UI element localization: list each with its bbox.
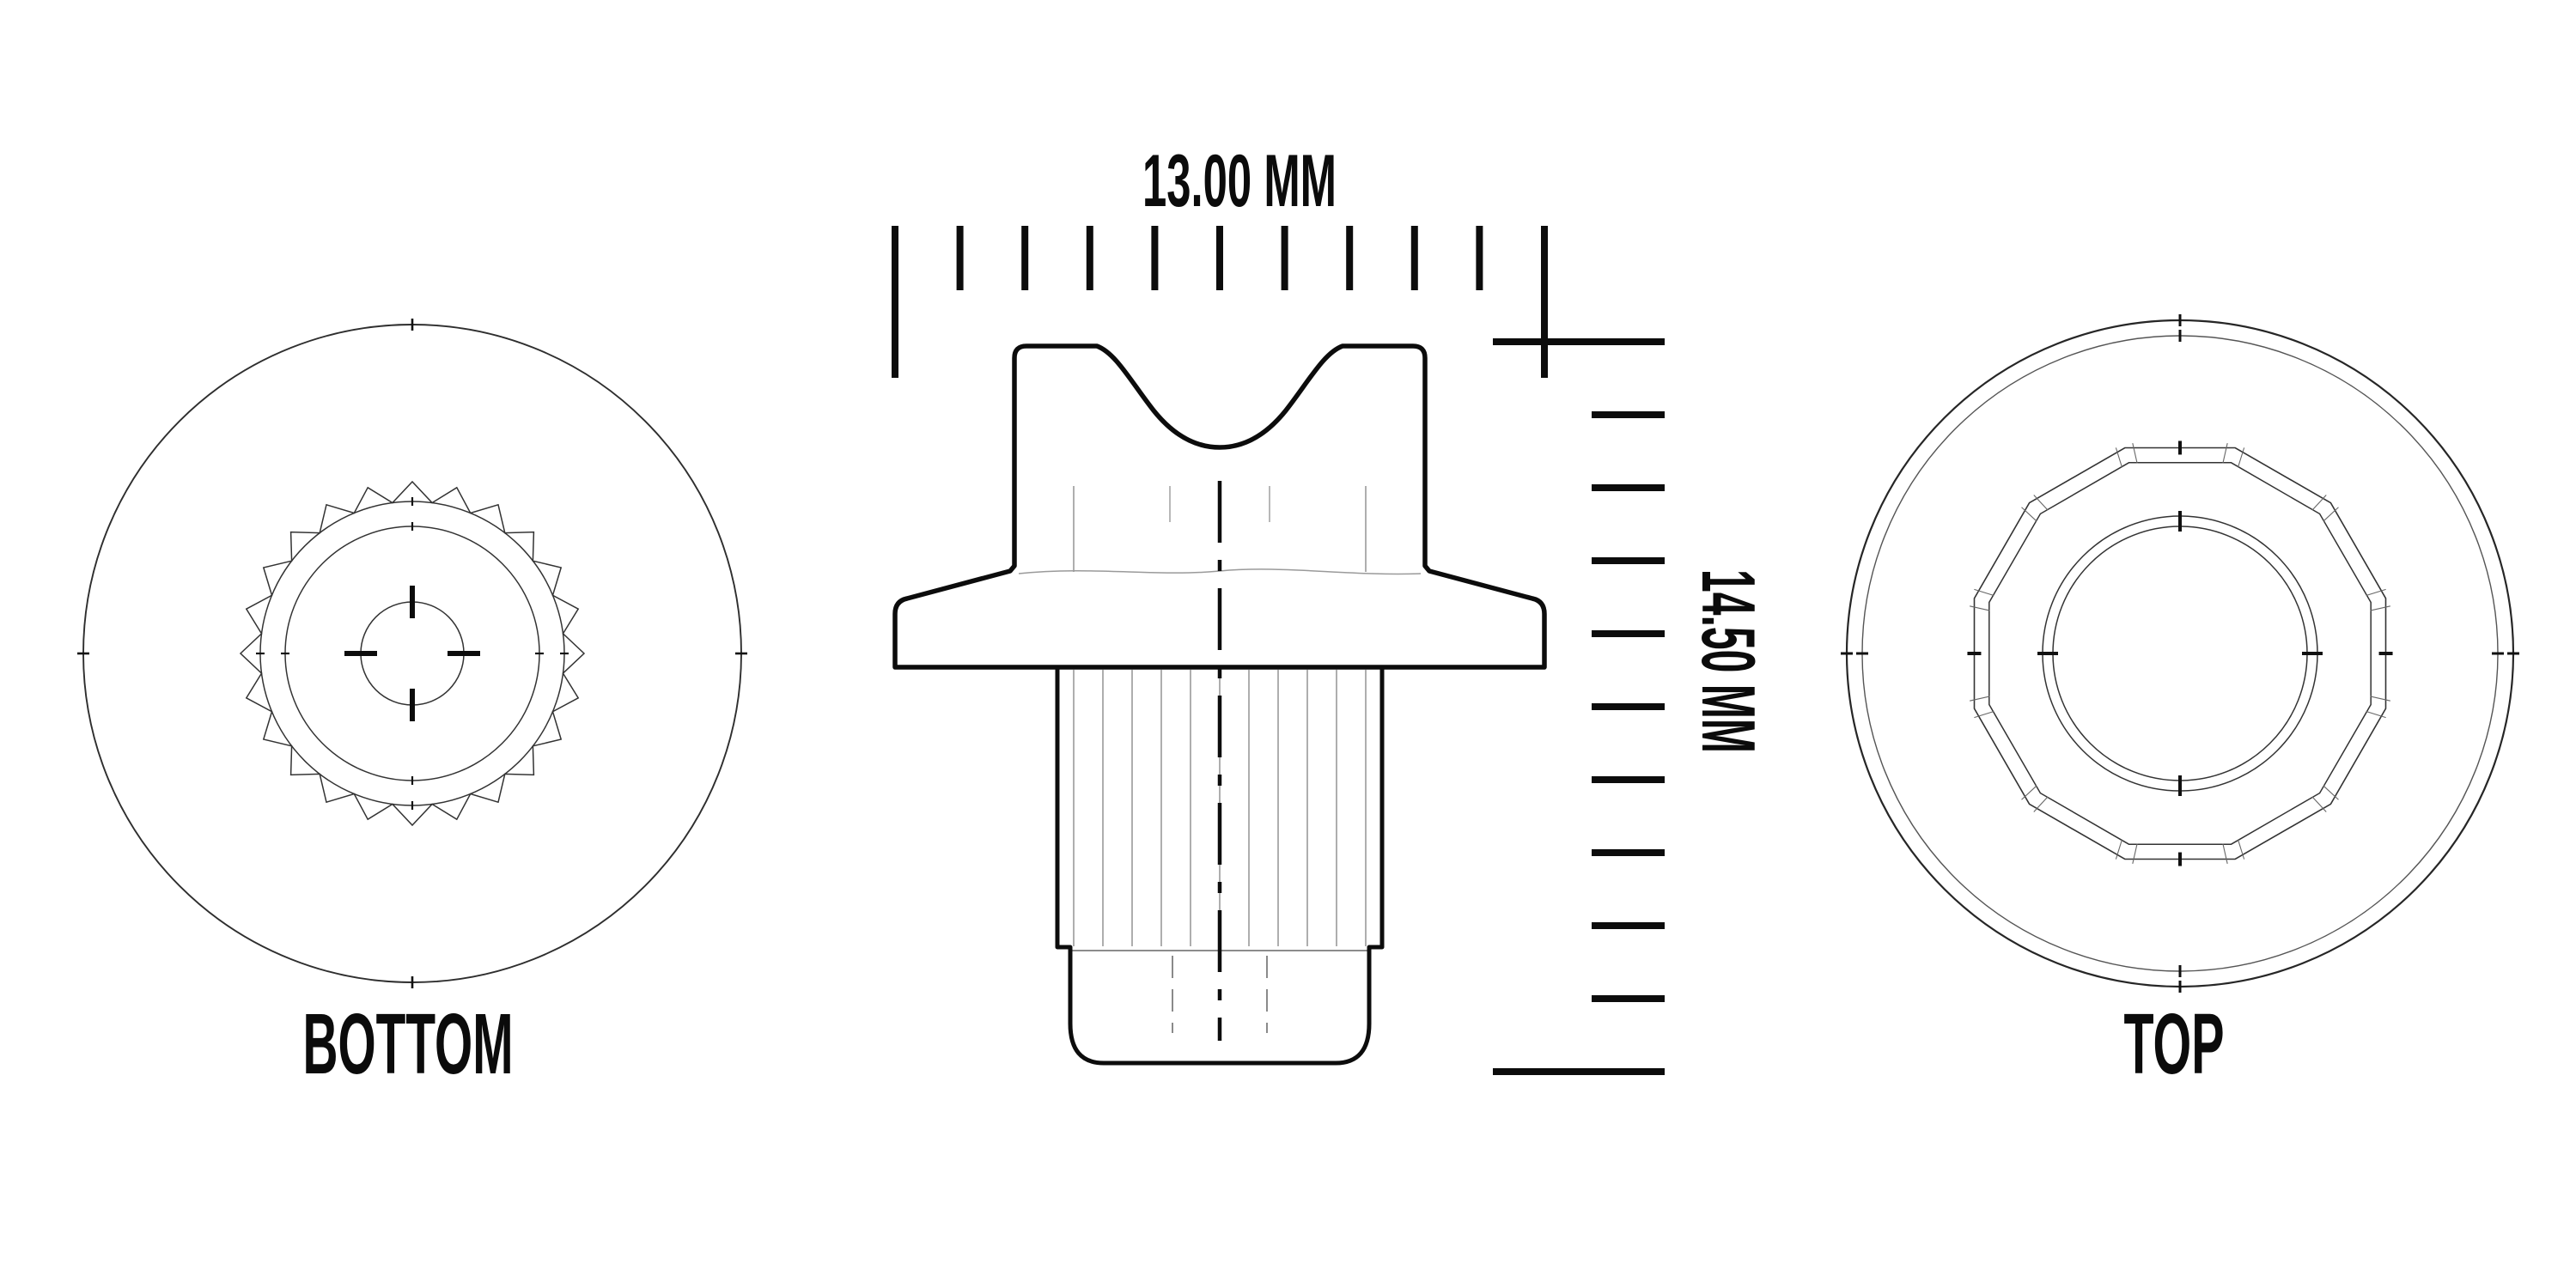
vertex-chamfer	[2312, 495, 2326, 511]
bottom-view-label: BOTTOM	[303, 996, 514, 1092]
vertical-ruler-ticks	[1493, 342, 1665, 1072]
side-view	[895, 346, 1544, 1063]
vertex-chamfer	[1970, 696, 1989, 701]
vertex-chamfer	[2312, 797, 2326, 812]
dodecagon-outer	[1975, 448, 2386, 860]
outer-disc-circle	[83, 325, 741, 982]
vertex-chamfer	[2133, 843, 2137, 863]
vertex-chamfer	[2034, 495, 2048, 511]
vertex-chamfer	[2133, 443, 2137, 463]
vertex-chamfer	[2022, 786, 2037, 799]
serration-base-circle	[260, 501, 564, 805]
vertex-chamfer	[2323, 786, 2339, 799]
technical-drawing-canvas: 13.00 MM 14.50 MM BOTTOM TOP	[0, 0, 2576, 1270]
bore-circle-outer	[2043, 516, 2317, 791]
vertical-ruler: 14.50 MM	[1493, 342, 1771, 1072]
height-dimension-label: 14.50 MM	[1686, 569, 1771, 753]
horizontal-ruler: 13.00 MM	[895, 140, 1544, 378]
horizontal-ruler-ticks	[895, 226, 1544, 378]
top-view-label: TOP	[2124, 996, 2225, 1092]
bottom-view-geometry	[77, 319, 747, 988]
inner-ring-circle	[285, 526, 539, 781]
bore-circle-inner	[2053, 526, 2307, 781]
width-dimension-label: 13.00 MM	[1142, 140, 1337, 222]
top-view	[1841, 314, 2519, 993]
top-view-geometry	[1841, 314, 2519, 993]
vertex-chamfer	[2223, 443, 2227, 463]
bottom-view	[77, 319, 747, 988]
outer-disc-circle	[1847, 320, 2513, 987]
vertex-chamfer	[2223, 843, 2227, 863]
engineering-drawing: 13.00 MM 14.50 MM BOTTOM TOP	[0, 0, 2576, 1270]
vertex-chamfer	[1970, 606, 1989, 611]
outer-inner-circle	[1862, 336, 2498, 971]
vertex-chamfer	[2034, 797, 2048, 812]
vertex-chamfer	[2370, 696, 2390, 701]
vertex-chamfer	[2370, 606, 2390, 611]
vertex-chamfer	[2323, 507, 2339, 521]
serration-ring	[241, 482, 584, 825]
vertex-chamfer	[2022, 507, 2037, 521]
